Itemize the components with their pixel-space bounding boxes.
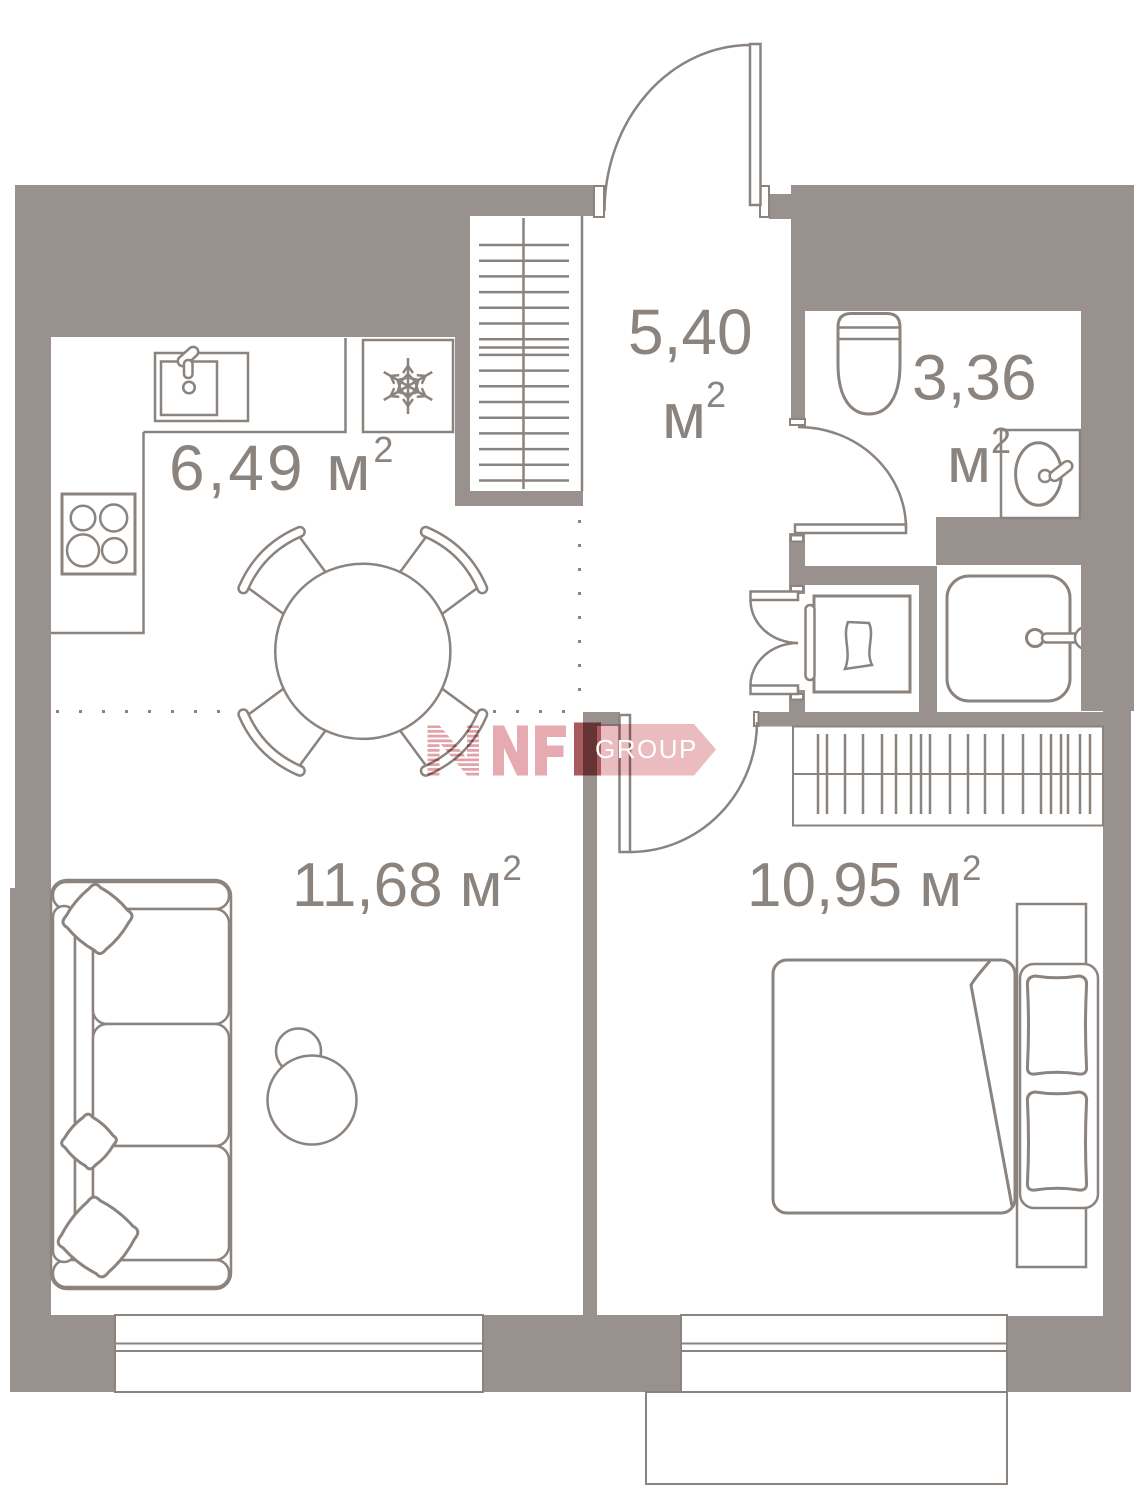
svg-text:11,68 м2: 11,68 м2 [292,849,522,920]
svg-text:GROUP: GROUP [595,734,698,764]
svg-text:3,36: 3,36 [912,342,1037,414]
svg-text:5,40: 5,40 [628,296,753,368]
svg-text:6,49 м2: 6,49 м2 [169,429,393,504]
svg-text:10,95 м2: 10,95 м2 [747,849,981,920]
